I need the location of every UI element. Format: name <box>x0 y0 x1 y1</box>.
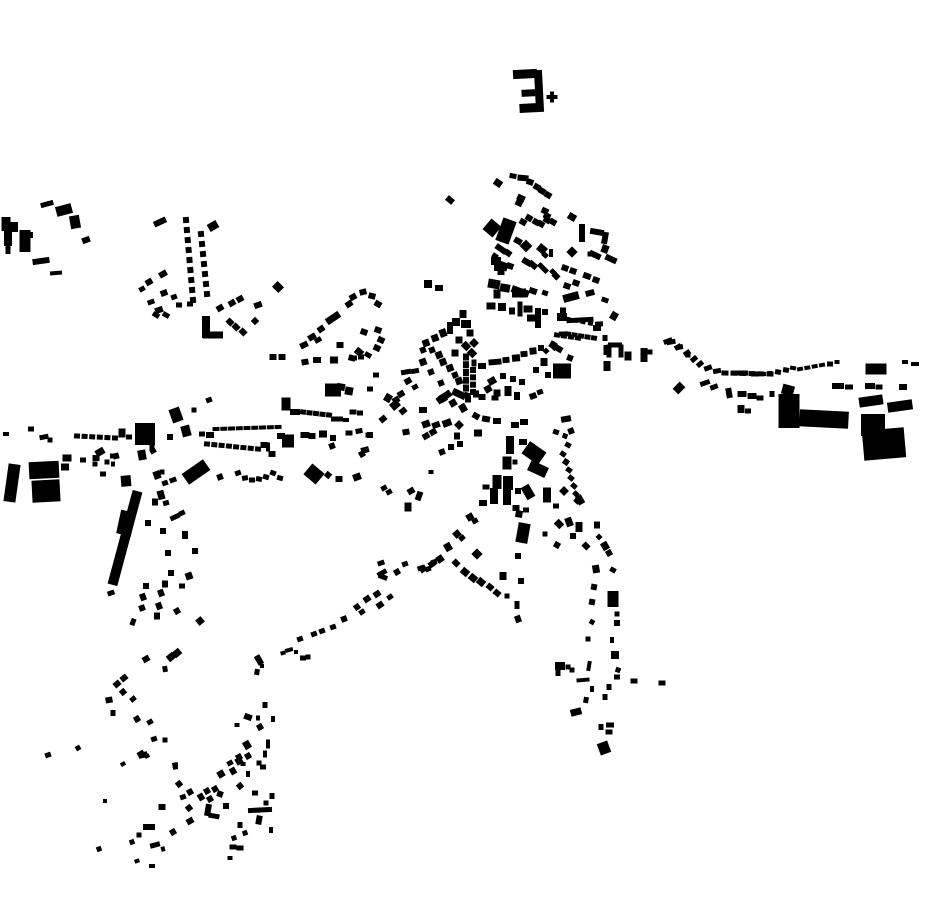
building-footprint <box>673 382 686 395</box>
building-footprint <box>739 371 746 376</box>
building-footprint <box>110 454 116 459</box>
building-footprint <box>89 434 95 439</box>
building-footprint <box>145 520 151 526</box>
building-footprint <box>519 379 525 385</box>
building-footprint <box>74 433 80 438</box>
building-footprint <box>168 570 174 576</box>
building-footprint <box>594 522 600 529</box>
building-footprint <box>318 628 325 635</box>
building-footprint <box>351 356 357 361</box>
building-footprint <box>591 584 598 591</box>
building-footprint <box>876 385 883 390</box>
building-footprint <box>126 435 132 440</box>
building-footprint <box>403 377 412 386</box>
building-footprint <box>467 330 474 337</box>
building-footprint <box>179 794 186 801</box>
building-footprint <box>811 364 818 369</box>
building-footprint <box>208 813 220 820</box>
building-footprint <box>393 568 401 576</box>
building-footprint <box>3 463 20 502</box>
building-footprint <box>186 788 194 796</box>
building-footprint <box>537 262 549 274</box>
building-footprint <box>81 434 87 439</box>
building-footprint <box>757 396 764 401</box>
building-footprint <box>545 372 551 378</box>
building-footprint <box>228 426 235 430</box>
building-footprint <box>457 441 463 447</box>
building-footprint <box>203 281 210 288</box>
building-footprint <box>503 476 513 490</box>
building-footprint <box>429 470 434 474</box>
building-footprint <box>328 442 336 450</box>
building-footprint <box>699 379 710 387</box>
building-footprint <box>368 292 376 300</box>
building-footprint <box>362 595 371 604</box>
building-footprint <box>259 425 266 429</box>
building-footprint <box>264 801 269 806</box>
building-footprint <box>44 752 51 759</box>
building-footprint <box>331 417 343 422</box>
building-footprint <box>160 289 169 297</box>
building-footprint <box>105 460 110 465</box>
building-footprint <box>242 740 252 750</box>
building-footprint <box>270 793 275 799</box>
building-footprint <box>167 434 173 440</box>
building-footprint <box>766 371 773 376</box>
building-footprint <box>494 390 501 397</box>
building-footprint <box>492 396 499 401</box>
building-footprint <box>460 310 467 318</box>
building-footprint <box>559 450 567 458</box>
building-footprint <box>515 601 520 609</box>
building-footprint <box>521 89 536 97</box>
building-footprint <box>515 522 530 544</box>
building-footprint <box>524 306 533 313</box>
building-footprint <box>561 333 568 339</box>
building-footprint <box>246 771 250 777</box>
building-footprint <box>570 533 576 539</box>
building-footprint <box>510 376 516 382</box>
building-footprint <box>103 799 107 803</box>
building-footprint <box>405 503 412 512</box>
building-footprint <box>470 367 476 373</box>
building-footprint <box>446 364 455 373</box>
building-footprint <box>116 510 136 537</box>
building-footprint <box>738 391 747 397</box>
building-footprint <box>493 178 504 188</box>
building-footprint <box>55 203 73 217</box>
building-footprint <box>493 418 501 424</box>
building-footprint <box>703 364 712 371</box>
building-footprint <box>562 291 580 303</box>
building-footprint <box>439 358 448 367</box>
building-footprint <box>401 369 412 376</box>
building-footprint <box>63 455 72 462</box>
building-footprint <box>188 277 195 284</box>
building-footprint <box>485 582 494 591</box>
building-footprint <box>377 336 386 344</box>
building-footprint <box>783 367 790 373</box>
building-footprint <box>435 285 443 291</box>
building-footprint <box>721 370 728 375</box>
building-footprint <box>216 473 224 481</box>
building-footprint <box>152 499 158 506</box>
building-footprint <box>431 421 441 429</box>
building-footprint <box>542 309 548 315</box>
building-footprint <box>121 475 132 487</box>
building-footprint <box>266 443 270 452</box>
building-footprint <box>445 195 455 205</box>
building-footprint <box>553 504 559 509</box>
building-footprint <box>282 435 294 448</box>
building-footprint <box>579 236 585 242</box>
building-footprint <box>279 354 286 360</box>
building-footprint <box>299 341 309 350</box>
building-footprint <box>495 217 516 244</box>
building-footprint <box>185 804 193 812</box>
building-footprint <box>648 350 653 355</box>
building-footprint <box>748 371 755 376</box>
building-footprint <box>111 462 115 467</box>
building-footprint <box>227 299 236 308</box>
building-footprint <box>182 459 211 485</box>
building-footprint <box>129 618 136 626</box>
building-footprint <box>75 745 82 752</box>
building-footprint <box>204 441 210 447</box>
building-footprint <box>269 470 276 477</box>
building-footprint <box>343 418 349 422</box>
building-footprint <box>529 392 538 400</box>
building-footprint <box>144 278 153 287</box>
building-footprint <box>165 550 171 556</box>
building-footprint <box>313 357 321 363</box>
building-footprint <box>251 426 258 430</box>
building-footprint <box>745 409 751 414</box>
building-footprint <box>252 791 258 796</box>
building-footprint <box>150 442 155 450</box>
building-footprint <box>492 588 501 597</box>
building-footprint <box>770 391 775 397</box>
building-footprint <box>119 673 128 682</box>
building-footprint <box>138 604 146 612</box>
building-footprint <box>600 541 610 551</box>
building-footprint <box>512 354 521 362</box>
building-footprint <box>566 246 577 257</box>
building-footprint <box>488 358 501 365</box>
building-footprint <box>271 716 275 722</box>
building-footprint <box>272 281 284 293</box>
building-footprint <box>97 435 103 440</box>
building-footprint <box>609 566 617 573</box>
building-footprint <box>463 354 469 361</box>
building-footprint <box>206 795 214 803</box>
building-footprint <box>233 444 239 450</box>
building-footprint <box>487 376 497 386</box>
building-footprint <box>81 236 91 244</box>
building-footprint <box>479 394 486 400</box>
building-footprint <box>415 491 424 502</box>
building-footprint <box>515 510 523 518</box>
building-footprint <box>28 427 34 432</box>
building-footprint <box>386 593 394 601</box>
building-footprint <box>158 269 168 278</box>
building-footprint <box>549 249 553 257</box>
building-footprint <box>182 531 188 539</box>
building-footprint <box>725 388 733 399</box>
building-footprint <box>581 541 590 550</box>
building-footprint <box>326 412 333 418</box>
building-footprint <box>319 431 327 438</box>
building-footprint <box>143 824 155 830</box>
building-footprint <box>422 339 431 348</box>
building-footprint <box>597 740 611 755</box>
building-footprint <box>674 343 683 351</box>
building-footprint <box>564 441 572 448</box>
building-footprint <box>498 269 505 275</box>
building-footprint <box>377 559 385 566</box>
building-footprint <box>604 361 611 371</box>
building-footprint <box>519 103 538 113</box>
building-footprint <box>775 369 782 375</box>
building-footprint <box>358 355 364 360</box>
building-footprint <box>576 522 583 532</box>
building-footprint <box>428 346 436 354</box>
building-footprint <box>528 287 538 295</box>
building-footprint <box>503 489 511 505</box>
building-footprint <box>614 620 620 626</box>
building-footprint <box>357 411 363 416</box>
building-footprint <box>153 217 167 228</box>
building-footprint <box>554 519 565 530</box>
building-footprint <box>799 409 849 429</box>
building-footprint <box>470 382 476 388</box>
building-footprint <box>603 694 608 700</box>
building-footprint <box>147 298 155 305</box>
building-footprint <box>162 581 168 588</box>
building-footprint <box>509 308 515 315</box>
building-footprint <box>336 383 345 391</box>
building-footprint <box>168 407 183 424</box>
building-footprint <box>447 322 453 334</box>
building-footprint <box>10 222 18 232</box>
building-footprint <box>567 427 575 435</box>
building-footprint <box>237 846 244 851</box>
building-footprint <box>519 439 527 445</box>
building-footprint <box>294 650 298 654</box>
building-footprint <box>199 241 206 248</box>
building-footprint <box>173 607 181 615</box>
building-footprint <box>604 254 617 265</box>
building-footprint <box>452 318 460 326</box>
building-footprint <box>561 415 572 423</box>
building-footprint <box>242 475 249 481</box>
building-footprint <box>256 716 260 721</box>
building-footprint <box>448 398 458 408</box>
building-footprint <box>911 362 919 366</box>
building-footprint <box>474 430 482 437</box>
building-footprint <box>779 394 800 428</box>
building-footprint <box>105 696 113 703</box>
building-footprint <box>862 427 906 461</box>
building-footprint <box>550 92 554 103</box>
building-footprint <box>192 548 198 554</box>
building-footprint <box>137 449 147 460</box>
building-footprint <box>561 264 570 272</box>
building-footprint <box>266 740 270 749</box>
building-footprint <box>567 212 577 222</box>
building-footprint <box>367 387 373 392</box>
building-footprint <box>220 427 227 431</box>
building-footprint <box>238 822 243 828</box>
building-footprint <box>451 371 459 379</box>
building-footprint <box>185 572 194 581</box>
building-footprint <box>31 479 60 502</box>
building-footprint <box>569 267 578 275</box>
building-footprint <box>319 411 326 417</box>
building-footprint <box>364 351 373 359</box>
building-footprint <box>226 759 234 766</box>
building-footprint <box>163 738 168 743</box>
building-footprint <box>247 446 253 452</box>
building-footprint <box>6 242 11 254</box>
building-footprint <box>162 311 171 319</box>
building-footprint <box>424 280 432 288</box>
building-footprint <box>48 438 53 443</box>
building-footprint <box>419 358 428 367</box>
building-footprint <box>139 593 147 602</box>
building-footprint <box>589 599 596 606</box>
building-footprint <box>160 846 165 852</box>
building-footprint <box>592 564 600 573</box>
building-footprint <box>184 227 191 234</box>
building-footprint <box>570 707 582 717</box>
building-footprint <box>274 425 281 429</box>
building-footprint <box>360 328 369 336</box>
building-footprint <box>529 347 537 355</box>
building-footprint <box>614 675 620 680</box>
building-footprint <box>463 369 469 376</box>
building-footprint <box>353 603 361 611</box>
building-footprint <box>402 428 410 435</box>
building-footprint <box>186 257 193 264</box>
building-footprint <box>592 276 601 284</box>
building-footprint <box>260 664 264 668</box>
building-footprint <box>641 348 648 362</box>
building-footprint <box>162 666 168 673</box>
building-footprint <box>129 839 135 845</box>
building-footprint <box>240 445 246 451</box>
building-footprint <box>757 371 764 376</box>
building-footprint <box>235 723 240 727</box>
building-footprint <box>454 420 464 430</box>
building-footprint <box>137 833 142 838</box>
building-footprint <box>427 368 435 376</box>
building-footprint <box>374 326 383 334</box>
building-footprint <box>135 423 155 445</box>
building-footprint <box>254 669 260 676</box>
building-footprint <box>500 572 507 580</box>
building-footprint <box>470 389 476 395</box>
building-footprint <box>204 291 211 298</box>
building-footprint <box>513 460 518 465</box>
building-footprint <box>615 612 620 617</box>
building-footprint <box>248 807 272 813</box>
building-footprint <box>819 362 826 367</box>
building-footprint <box>690 355 699 363</box>
building-footprint <box>590 228 605 236</box>
building-footprint <box>324 471 332 479</box>
building-footprint <box>421 432 430 441</box>
building-footprint <box>282 398 291 411</box>
building-footprint <box>207 220 220 232</box>
building-footprint <box>448 444 454 450</box>
building-footprint <box>543 488 551 503</box>
building-footprint <box>406 487 415 496</box>
building-footprint <box>301 432 310 438</box>
building-footprint <box>500 373 506 379</box>
building-footprint <box>470 374 476 380</box>
building-footprint <box>595 533 602 540</box>
building-footprint <box>570 668 575 673</box>
building-footprint <box>285 647 294 653</box>
building-footprint <box>306 410 313 416</box>
building-footprint <box>555 662 565 670</box>
building-footprint <box>269 451 276 457</box>
building-footprint <box>603 335 608 341</box>
building-footprint <box>804 365 811 370</box>
building-footprint <box>107 589 115 596</box>
building-footprint <box>586 637 591 642</box>
building-footprint <box>255 815 262 825</box>
building-footprint <box>263 702 268 708</box>
building-footprint <box>502 357 509 364</box>
building-footprint <box>490 488 498 504</box>
building-footprint <box>858 394 883 407</box>
building-footprint <box>160 528 166 534</box>
building-footprint <box>290 409 300 415</box>
building-footprint <box>586 661 592 672</box>
building-footprint <box>483 384 493 394</box>
building-footprint <box>600 244 609 254</box>
building-footprint <box>169 513 180 522</box>
building-footprint <box>256 476 263 482</box>
building-footprint <box>611 651 619 659</box>
building-footprint <box>197 792 206 801</box>
building-footprint <box>69 215 81 230</box>
map-canvas <box>0 0 930 924</box>
building-footprint <box>263 751 267 758</box>
building-footprint <box>608 591 619 607</box>
building-footprint <box>253 301 263 309</box>
building-footprint <box>185 237 192 244</box>
building-footprint <box>170 294 177 301</box>
building-footprint <box>748 393 757 399</box>
building-footprint <box>50 270 62 275</box>
building-footprint <box>355 428 363 434</box>
building-footprint <box>346 431 353 436</box>
building-footprint <box>533 367 539 373</box>
building-footprint <box>230 845 237 850</box>
building-footprint <box>337 342 344 348</box>
building-footprint <box>236 782 244 790</box>
building-footprint <box>541 290 548 297</box>
building-footprint <box>832 383 844 389</box>
building-footprint <box>570 482 578 490</box>
building-footprint <box>313 411 320 417</box>
building-footprint <box>344 386 353 395</box>
building-footprint <box>589 619 596 626</box>
building-footprint <box>562 433 568 439</box>
